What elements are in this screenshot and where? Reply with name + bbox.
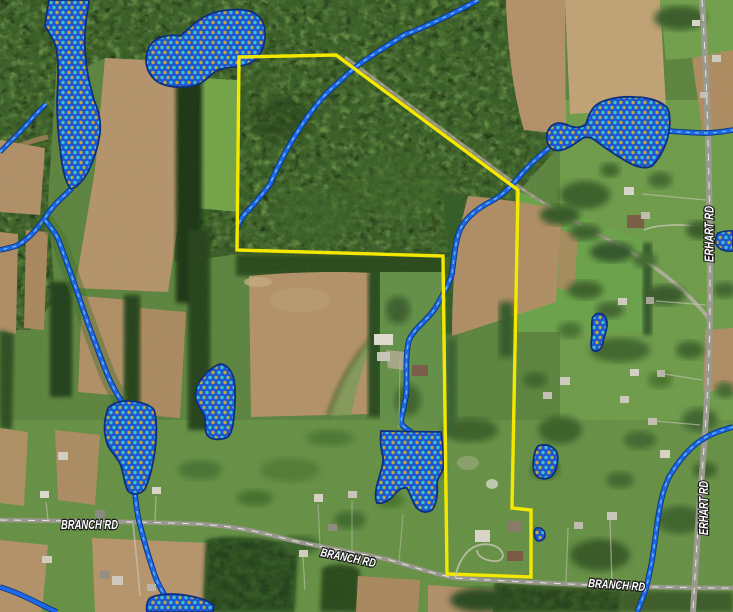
svg-text:BRANCH RD: BRANCH RD	[61, 517, 118, 532]
svg-text:ERHART RD: ERHART RD	[697, 481, 711, 535]
svg-text:ERHART RD: ERHART RD	[703, 206, 717, 262]
